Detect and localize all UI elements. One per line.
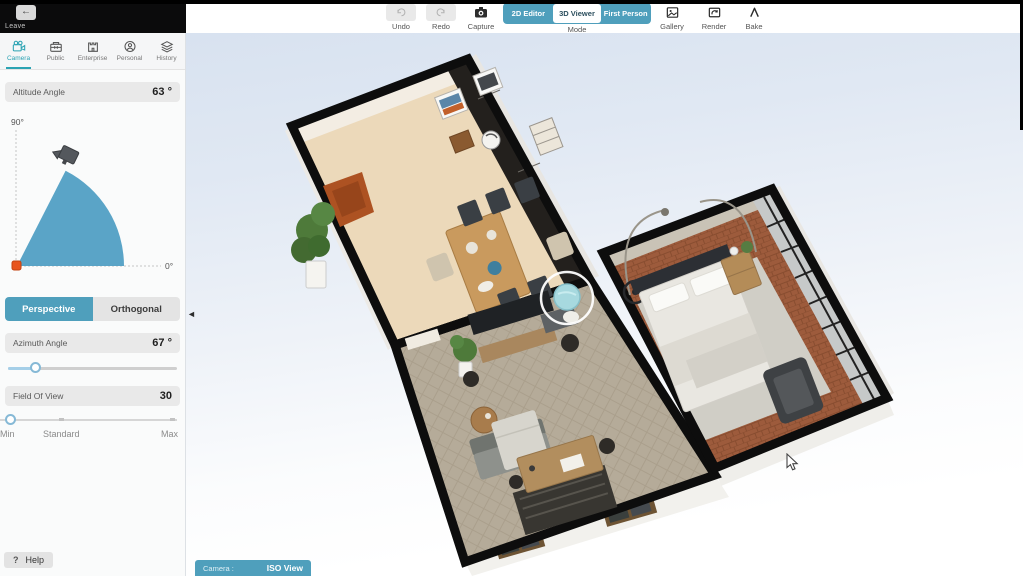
- mode-first-person[interactable]: First Person: [601, 4, 650, 23]
- sidebar-tabs: Camera Public Enterprise Personal Histor…: [0, 33, 185, 70]
- gallery-icon: [665, 5, 680, 20]
- undo-button[interactable]: Undo: [383, 3, 419, 31]
- render-icon: [707, 5, 722, 20]
- tab-camera-label: Camera: [7, 55, 30, 62]
- floor-lamp-sphere[interactable]: [509, 475, 523, 489]
- mode-2d-editor[interactable]: 2D Editor: [504, 4, 553, 23]
- floor-lamp-sphere[interactable]: [561, 334, 579, 352]
- wall-shelf[interactable]: [529, 118, 563, 156]
- castle-icon: [86, 40, 100, 53]
- undo-label: Undo: [383, 22, 419, 31]
- origin-marker: [12, 261, 21, 270]
- field-of-view-row[interactable]: Field Of View 30: [5, 386, 180, 406]
- app-window: ← Leave Undo Redo Capture 2D Editor 3D V…: [0, 0, 1023, 576]
- video-camera-icon: [12, 40, 26, 53]
- field-of-view-label: Field Of View: [13, 391, 63, 401]
- 3d-viewport[interactable]: ◄: [186, 33, 1023, 576]
- undo-icon: [395, 6, 407, 18]
- tab-history[interactable]: History: [148, 33, 185, 69]
- redo-label: Redo: [423, 22, 459, 31]
- top-black-edge: [0, 0, 1023, 4]
- field-of-view-value: 30: [160, 390, 172, 402]
- help-question-icon: ?: [13, 555, 19, 565]
- mouse-cursor: [785, 453, 801, 473]
- field-of-view-slider[interactable]: [0, 414, 185, 426]
- gallery-button[interactable]: Gallery: [650, 3, 694, 31]
- diagram-max-label: 90°: [11, 117, 24, 127]
- tab-personal[interactable]: Personal: [111, 33, 148, 69]
- back-arrow-icon[interactable]: ←: [16, 5, 36, 20]
- capture-button[interactable]: Capture: [461, 3, 501, 31]
- diagram-min-label: 0°: [165, 261, 173, 271]
- perspective-button[interactable]: Perspective: [5, 297, 93, 321]
- azimuth-slider[interactable]: [8, 362, 177, 374]
- bake-icon: [747, 5, 762, 20]
- orthogonal-button[interactable]: Orthogonal: [93, 297, 181, 321]
- altitude-angle-value: 63 °: [152, 86, 172, 98]
- bake-button[interactable]: Bake: [734, 3, 774, 31]
- person-icon: [123, 40, 137, 53]
- tab-personal-label: Personal: [117, 55, 143, 62]
- projection-switch: Perspective Orthogonal: [5, 297, 180, 321]
- azimuth-slider-handle[interactable]: [30, 362, 41, 373]
- render-button[interactable]: Render: [692, 3, 736, 31]
- fov-scale-labels: Min Standard Max: [0, 429, 185, 441]
- field-of-view-slider-handle[interactable]: [5, 414, 16, 425]
- layers-icon: [160, 40, 174, 53]
- mode-switcher: 2D Editor 3D Viewer First Person Mode: [503, 3, 651, 34]
- camera-bar-value: ISO View: [267, 563, 303, 573]
- gallery-label: Gallery: [650, 22, 694, 31]
- altitude-angle-row[interactable]: Altitude Angle 63 °: [5, 82, 180, 102]
- header-toolbar: ← Leave Undo Redo Capture 2D Editor 3D V…: [0, 0, 1023, 33]
- leave-block: ← Leave: [0, 0, 186, 33]
- azimuth-angle-label: Azimuth Angle: [13, 338, 67, 348]
- floor-lamp-sphere[interactable]: [463, 371, 479, 387]
- camera-settings-panel: Camera Public Enterprise Personal Histor…: [0, 33, 186, 576]
- camera-marker-icon[interactable]: [50, 142, 79, 168]
- dresser-vase[interactable]: [730, 247, 738, 255]
- camera-view-bar[interactable]: Camera : ISO View: [195, 560, 311, 576]
- camera-capture-icon: [473, 4, 489, 20]
- redo-icon: [435, 6, 447, 18]
- azimuth-angle-row[interactable]: Azimuth Angle 67 °: [5, 333, 180, 353]
- dresser-plant[interactable]: [741, 241, 753, 253]
- tab-public-label: Public: [47, 55, 65, 62]
- leave-label: Leave: [5, 23, 26, 30]
- bake-label: Bake: [734, 22, 774, 31]
- tab-camera[interactable]: Camera: [0, 33, 37, 69]
- render-label: Render: [692, 22, 736, 31]
- mode-3d-viewer[interactable]: 3D Viewer: [553, 4, 602, 23]
- altitude-angle-diagram[interactable]: 90° 0°: [5, 111, 180, 283]
- tab-enterprise-label: Enterprise: [78, 55, 108, 62]
- altitude-angle-label: Altitude Angle: [13, 87, 65, 97]
- potted-plant[interactable]: [291, 202, 335, 288]
- azimuth-angle-value: 67 °: [152, 337, 172, 349]
- redo-button[interactable]: Redo: [423, 3, 459, 31]
- box-icon: [49, 40, 63, 53]
- capture-label: Capture: [461, 22, 501, 31]
- tab-enterprise[interactable]: Enterprise: [74, 33, 111, 69]
- mode-label: Mode: [503, 25, 651, 34]
- help-label: Help: [26, 555, 45, 565]
- floor-lamp-sphere[interactable]: [599, 438, 615, 454]
- fov-standard-label: Standard: [43, 429, 80, 439]
- help-button[interactable]: ? Help: [4, 552, 53, 568]
- altitude-arc-sector: [17, 171, 124, 266]
- fov-min-label: Min: [0, 429, 15, 439]
- floorplan-3d-view[interactable]: [186, 33, 1023, 576]
- tab-history-label: History: [156, 55, 176, 62]
- tab-public[interactable]: Public: [37, 33, 74, 69]
- fov-max-label: Max: [161, 429, 178, 439]
- camera-bar-label: Camera :: [203, 564, 234, 573]
